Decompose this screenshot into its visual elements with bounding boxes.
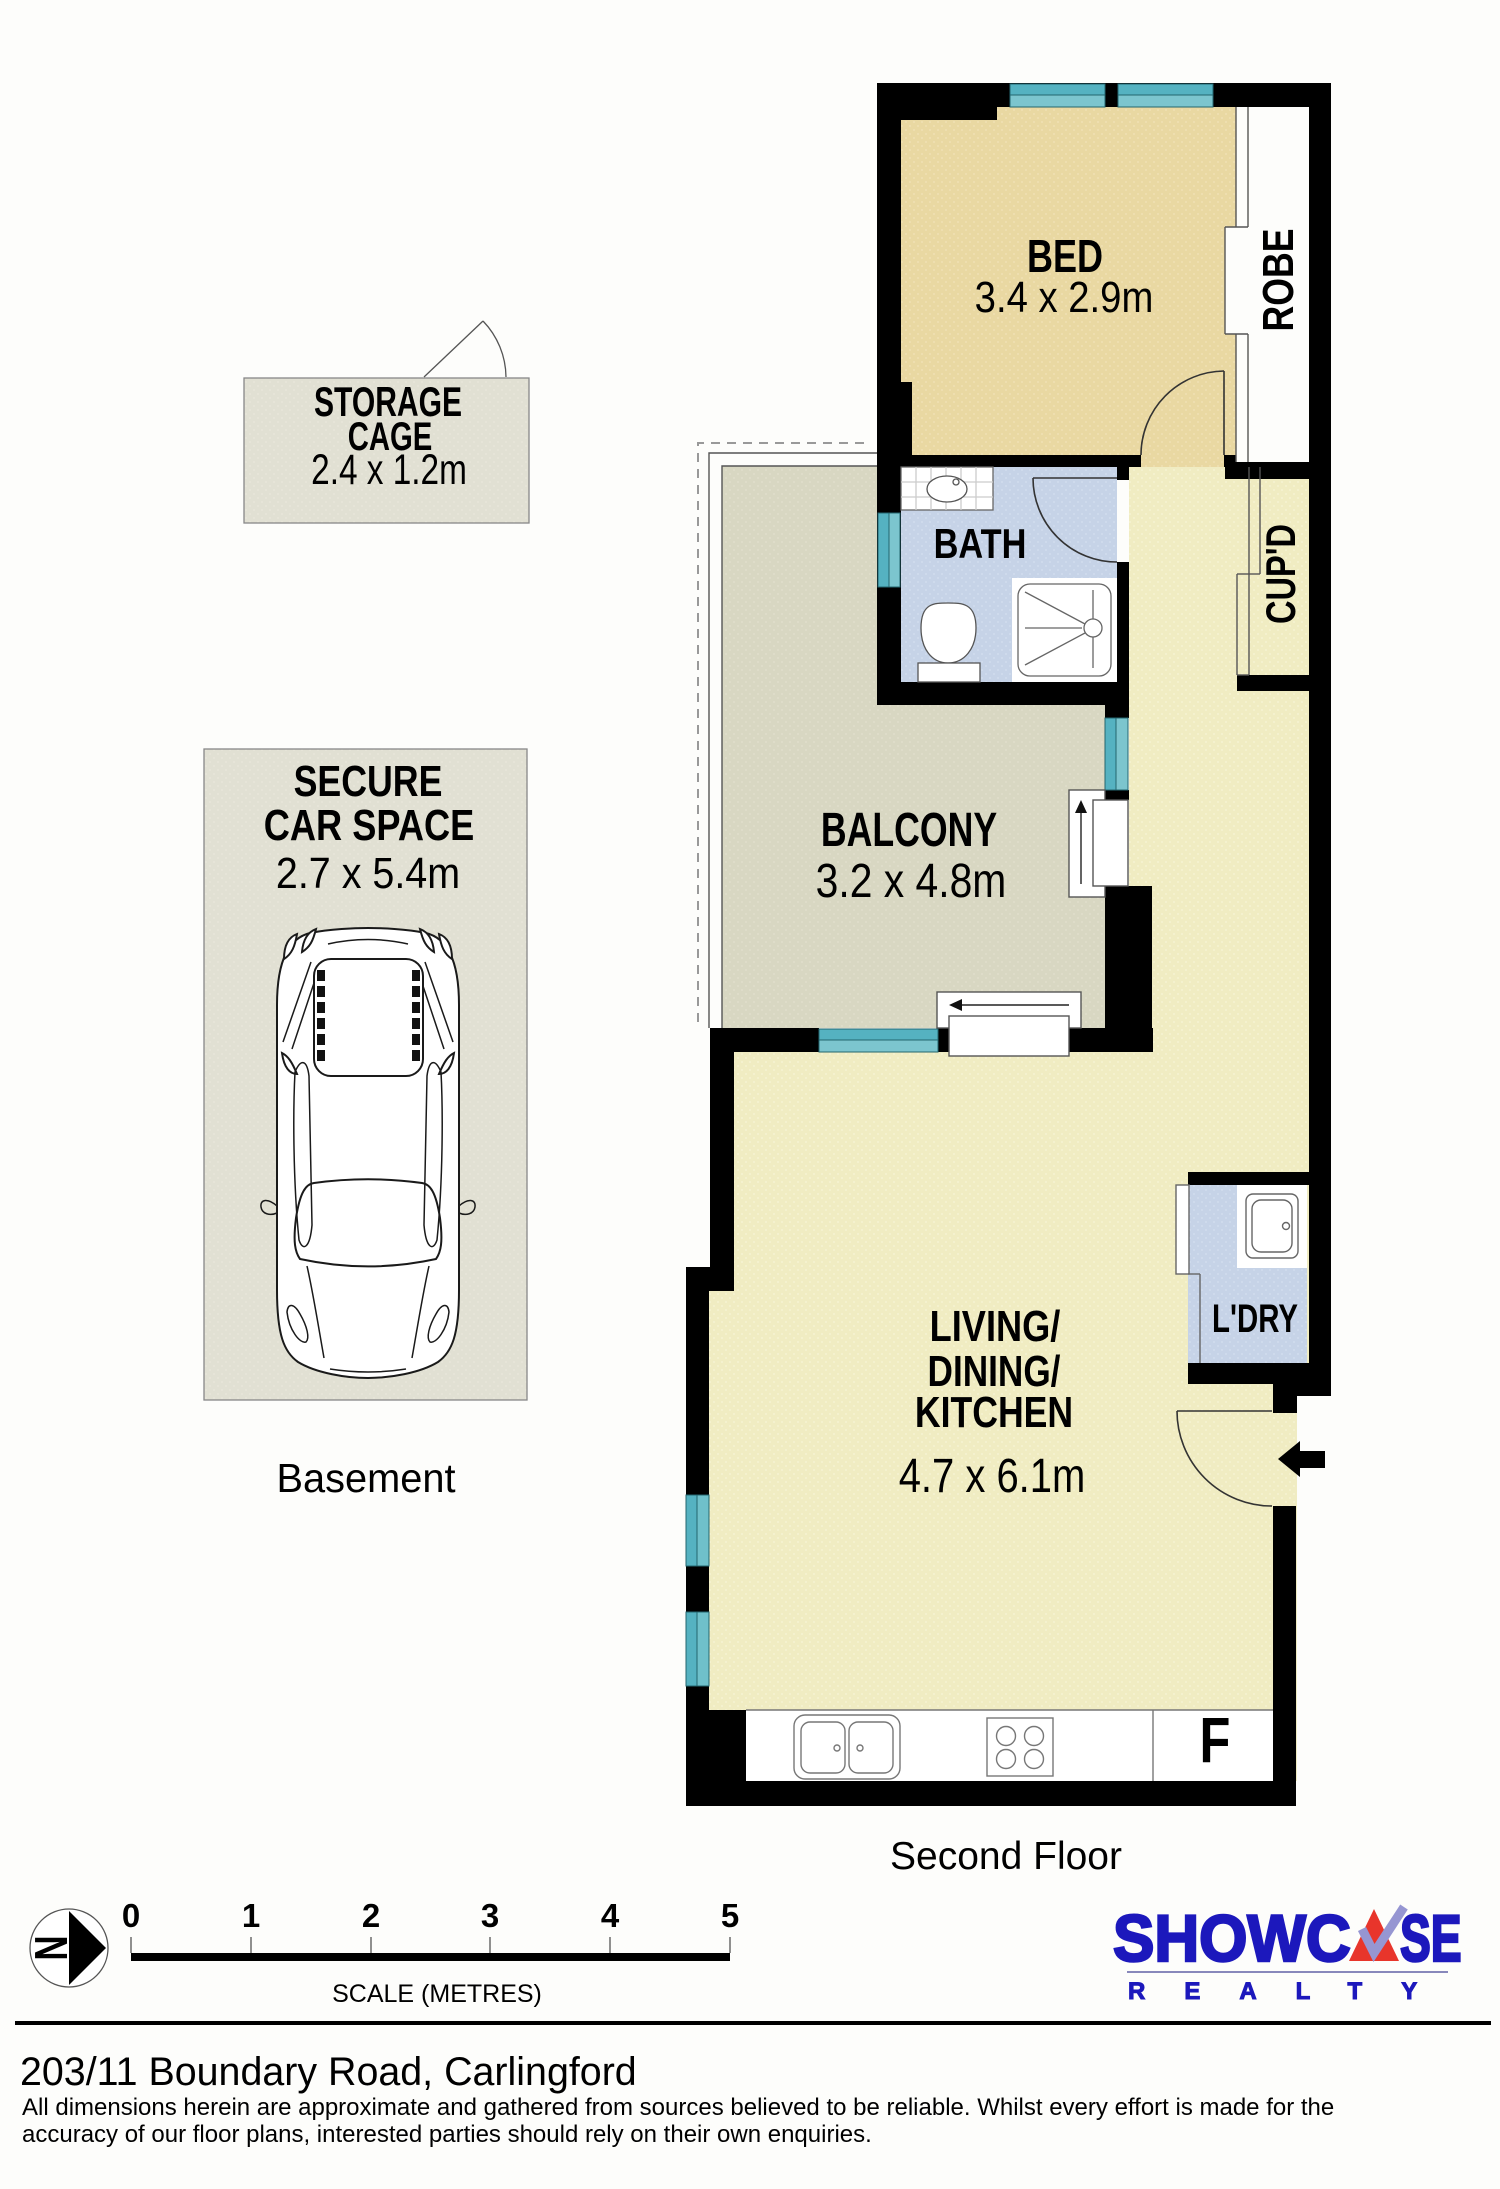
svg-text:CAR SPACE: CAR SPACE [264, 801, 475, 850]
svg-text:3.4 x 2.9m: 3.4 x 2.9m [975, 273, 1154, 322]
svg-text:2.4 x 1.2m: 2.4 x 1.2m [311, 446, 467, 494]
svg-text:N: N [25, 1935, 77, 1960]
svg-text:BALCONY: BALCONY [821, 803, 997, 856]
svg-text:SHOWC: SHOWC [1113, 1901, 1351, 1975]
svg-text:SCALE (METRES): SCALE (METRES) [332, 1980, 542, 2008]
svg-text:2.7 x 5.4m: 2.7 x 5.4m [276, 848, 460, 897]
svg-text:F: F [1200, 1705, 1231, 1776]
svg-text:4: 4 [601, 1897, 620, 1934]
svg-text:All dimensions herein are appr: All dimensions herein are approximate an… [22, 2094, 1334, 2121]
svg-text:ROBE: ROBE [1255, 229, 1303, 332]
svg-text:KITCHEN: KITCHEN [915, 1389, 1073, 1437]
svg-text:Second Floor: Second Floor [890, 1835, 1122, 1878]
svg-text:REALTY: REALTY [1128, 1978, 1456, 2005]
svg-text:2: 2 [362, 1897, 380, 1934]
svg-text:5: 5 [721, 1897, 739, 1934]
svg-text:3: 3 [481, 1897, 499, 1934]
svg-text:SECURE: SECURE [294, 758, 443, 806]
svg-text:203/11 Boundary Road, Carlingf: 203/11 Boundary Road, Carlingford [20, 2050, 637, 2094]
svg-text:SE: SE [1400, 1902, 1462, 1976]
svg-text:Basement: Basement [276, 1454, 455, 1501]
svg-text:3.2 x 4.8m: 3.2 x 4.8m [816, 855, 1007, 908]
svg-text:1: 1 [242, 1897, 260, 1934]
svg-text:BATH: BATH [934, 521, 1027, 568]
svg-text:L'DRY: L'DRY [1212, 1297, 1298, 1341]
svg-text:0: 0 [122, 1897, 140, 1934]
svg-text:LIVING/: LIVING/ [930, 1302, 1061, 1351]
svg-text:4.7 x 6.1m: 4.7 x 6.1m [899, 1450, 1086, 1503]
svg-text:CUP'D: CUP'D [1257, 524, 1304, 624]
svg-text:accuracy of our floor plans, i: accuracy of our floor plans, interested … [22, 2121, 872, 2148]
